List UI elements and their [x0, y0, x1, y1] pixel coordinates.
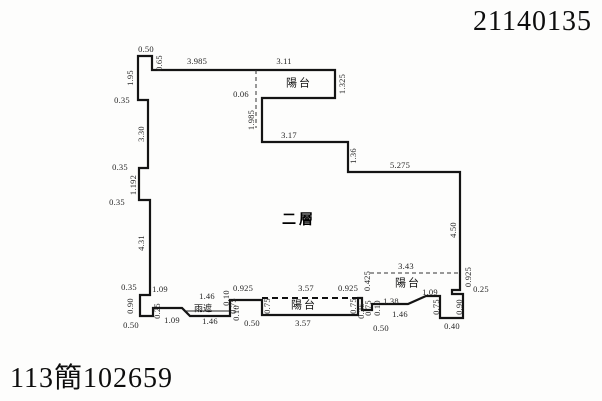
dimension-label: 0.90	[455, 299, 464, 315]
dimension-label: 0.65	[155, 55, 164, 71]
dimension-label: 0.06	[233, 90, 249, 99]
case-number: 113簡102659	[10, 356, 173, 396]
dimension-label: 1.36	[349, 148, 358, 164]
dimension-label: 1.09	[164, 316, 180, 325]
dimension-label: 0.925	[338, 284, 358, 293]
dimension-label: 3.11	[276, 57, 291, 66]
dimension-label: 0.35	[109, 198, 125, 207]
dimension-label: 0.10	[373, 300, 382, 316]
dimension-label: 0.25	[153, 303, 162, 319]
dimension-label: 0.50	[138, 45, 154, 54]
dimension-label: 0.35	[121, 283, 137, 292]
dimension-label: 1.325	[338, 74, 347, 94]
dimension-label: 0.75	[229, 298, 238, 314]
dimension-label: 3.30	[137, 126, 146, 142]
floor-plan-page: 21140135 113簡102659 二層 陽台陽台陽台雨遮 0.501.95…	[0, 0, 602, 401]
dimension-label: 1.46	[392, 310, 408, 319]
dimension-label: 1.38	[383, 297, 399, 306]
document-number: 21140135	[473, 6, 592, 38]
dimension-label: 1.09	[152, 285, 168, 294]
floor-plan-drawing	[0, 0, 602, 401]
area-label: 陽台	[291, 301, 317, 312]
dimension-label: 4.50	[449, 222, 458, 238]
dimension-label: 0.40	[444, 322, 460, 331]
dimension-label: 1.09	[422, 288, 438, 297]
dimension-label: 0.25	[473, 285, 489, 294]
dimension-label: 3.985	[187, 57, 207, 66]
dimension-label: 0.925	[233, 284, 253, 293]
dimension-label: 0.50	[123, 321, 139, 330]
dimension-label: 0.50	[373, 324, 389, 333]
dimension-label: 0.50	[244, 319, 260, 328]
dimension-label: 3.57	[298, 284, 314, 293]
dimension-label: 0.425	[363, 271, 372, 291]
area-label: 雨遮	[194, 305, 212, 314]
dimension-label: 1.95	[126, 70, 135, 86]
dimension-label: 1.985	[247, 110, 256, 130]
dimension-label: 0.90	[126, 298, 135, 314]
dimension-label: 0.75	[263, 298, 272, 314]
dimension-label: 1.192	[129, 175, 138, 195]
dimension-label: 5.275	[390, 161, 410, 170]
area-label: 陽台	[395, 279, 421, 290]
dimension-label: 3.17	[281, 131, 297, 140]
dimension-label: 0.75	[432, 299, 441, 315]
dimension-label: 1.46	[199, 292, 215, 301]
dimension-label: 3.43	[398, 262, 414, 271]
floor-label: 二層	[282, 209, 316, 229]
dimension-label: 0.925	[464, 267, 473, 287]
area-label: 陽台	[286, 79, 312, 90]
dimension-label: 0.35	[112, 163, 128, 172]
dimension-label: 0.35	[114, 96, 130, 105]
dimension-label: 3.57	[295, 319, 311, 328]
dimension-label: 1.46	[202, 317, 218, 326]
dimension-label: 4.31	[137, 235, 146, 251]
